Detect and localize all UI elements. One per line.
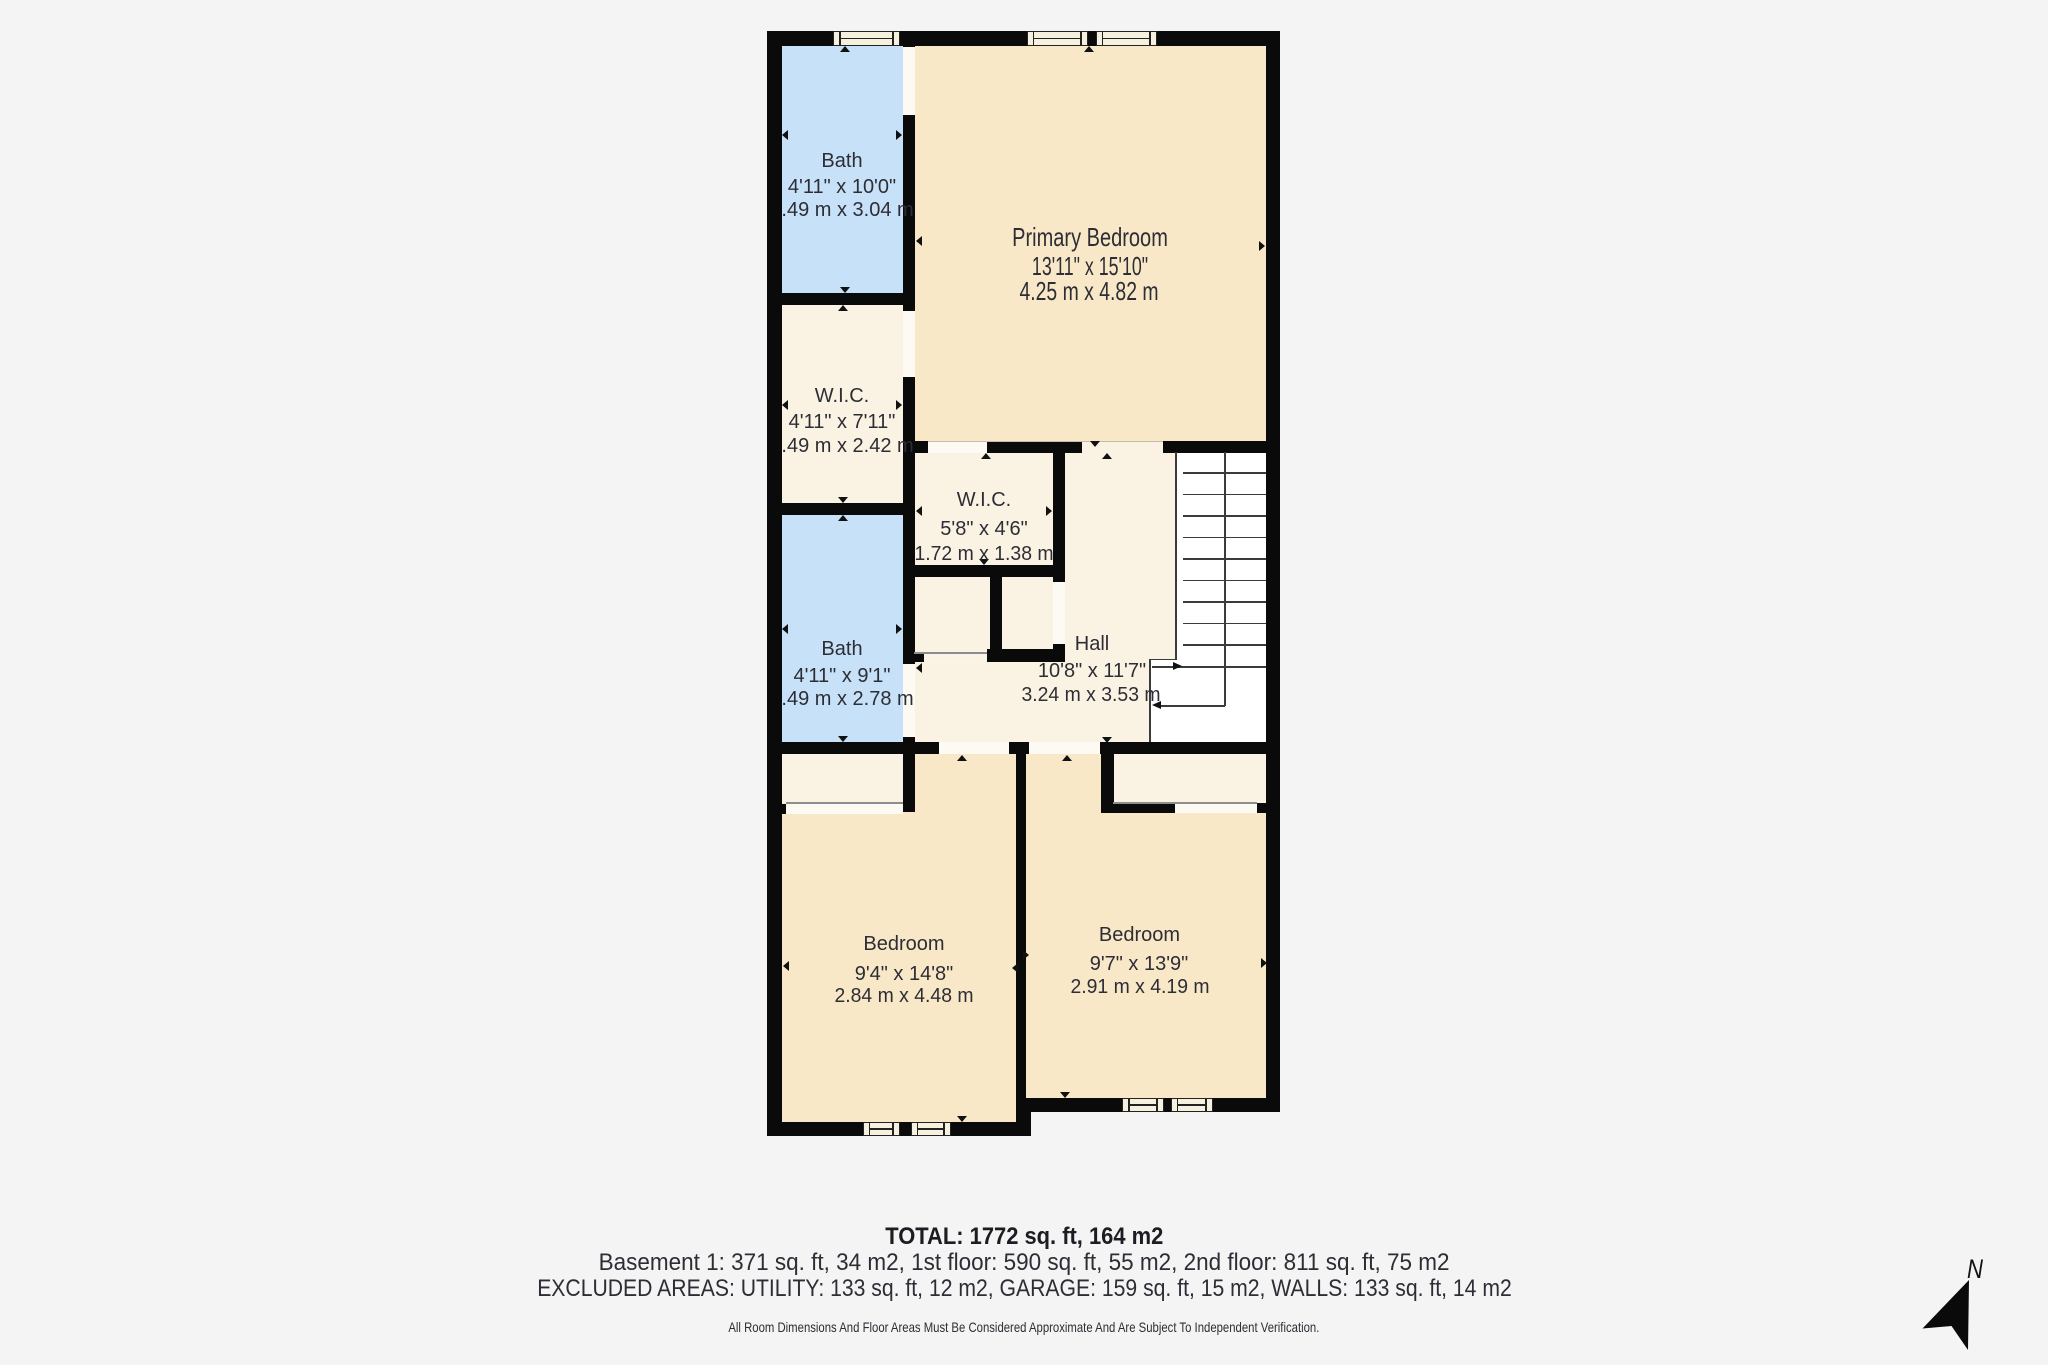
svg-text:N: N	[1967, 1254, 1983, 1284]
